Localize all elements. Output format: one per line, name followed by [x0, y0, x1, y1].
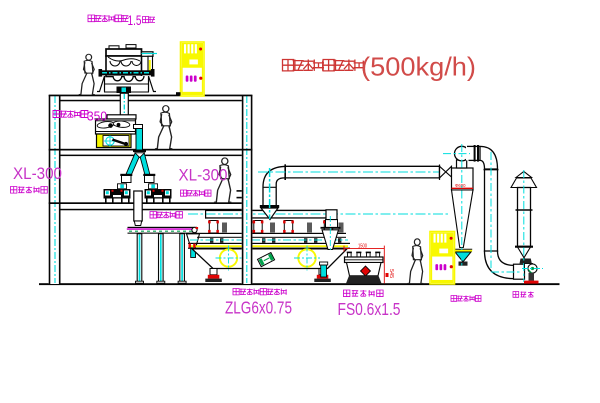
svg-text:XL-300: XL-300	[13, 164, 62, 183]
svg-text:1.5: 1.5	[128, 12, 142, 28]
svg-text:(500kg/h): (500kg/h)	[361, 52, 476, 82]
svg-text:XL-300: XL-300	[179, 166, 228, 185]
svg-text:350: 350	[87, 110, 107, 124]
svg-text:545: 545	[388, 269, 394, 278]
svg-text:FS0.6x1.5: FS0.6x1.5	[338, 299, 401, 319]
svg-text:Φ600: Φ600	[455, 183, 466, 188]
svg-text:ZLG6x0.75: ZLG6x0.75	[225, 298, 292, 318]
svg-text:1500: 1500	[358, 244, 367, 250]
